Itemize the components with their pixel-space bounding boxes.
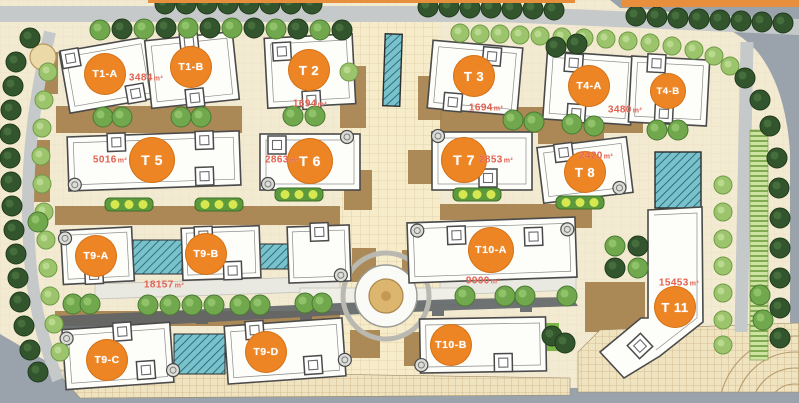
pool-east [655,152,701,208]
building-t9d [224,315,352,385]
boundary-strip-thick [622,0,799,7]
building-badge-t10b[interactable]: T10-B [430,324,472,366]
building-badge-t4a[interactable]: T4-A [568,65,610,107]
building-badge-t9b[interactable]: T9-B [185,233,227,275]
water-connector-t9ab [133,240,182,274]
building-badge-t3[interactable]: T 3 [453,55,495,97]
building-badge-t2[interactable]: T 2 [288,49,330,91]
building-badge-t8[interactable]: T 8 [564,151,606,193]
site-plan: T1-A T1-B T 2 T 3 T4-A T4-B T 5 T 6 T 7 … [0,0,799,403]
water-connector-t9cd [174,334,225,374]
central-canal [383,34,403,107]
water-connector-t9b [260,244,288,269]
building-badge-t7[interactable]: T 7 [441,137,487,183]
building-badge-t1a[interactable]: T1-A [84,53,126,95]
building-badge-t9d[interactable]: T9-D [245,331,287,373]
building-t9b-east-wing [287,222,351,284]
building-badge-t10a[interactable]: T10-A [468,227,514,273]
building-badge-t11[interactable]: T 11 [654,286,696,328]
building-badge-t9c[interactable]: T9-C [86,339,128,381]
building-badge-t5[interactable]: T 5 [129,137,175,183]
building-badge-t4b[interactable]: T4-B [650,73,686,109]
boundary-strip-thin [148,0,575,3]
building-badge-t1b[interactable]: T1-B [170,46,212,88]
building-badge-t6[interactable]: T 6 [287,138,333,184]
building-badge-t9a[interactable]: T9-A [75,235,117,277]
